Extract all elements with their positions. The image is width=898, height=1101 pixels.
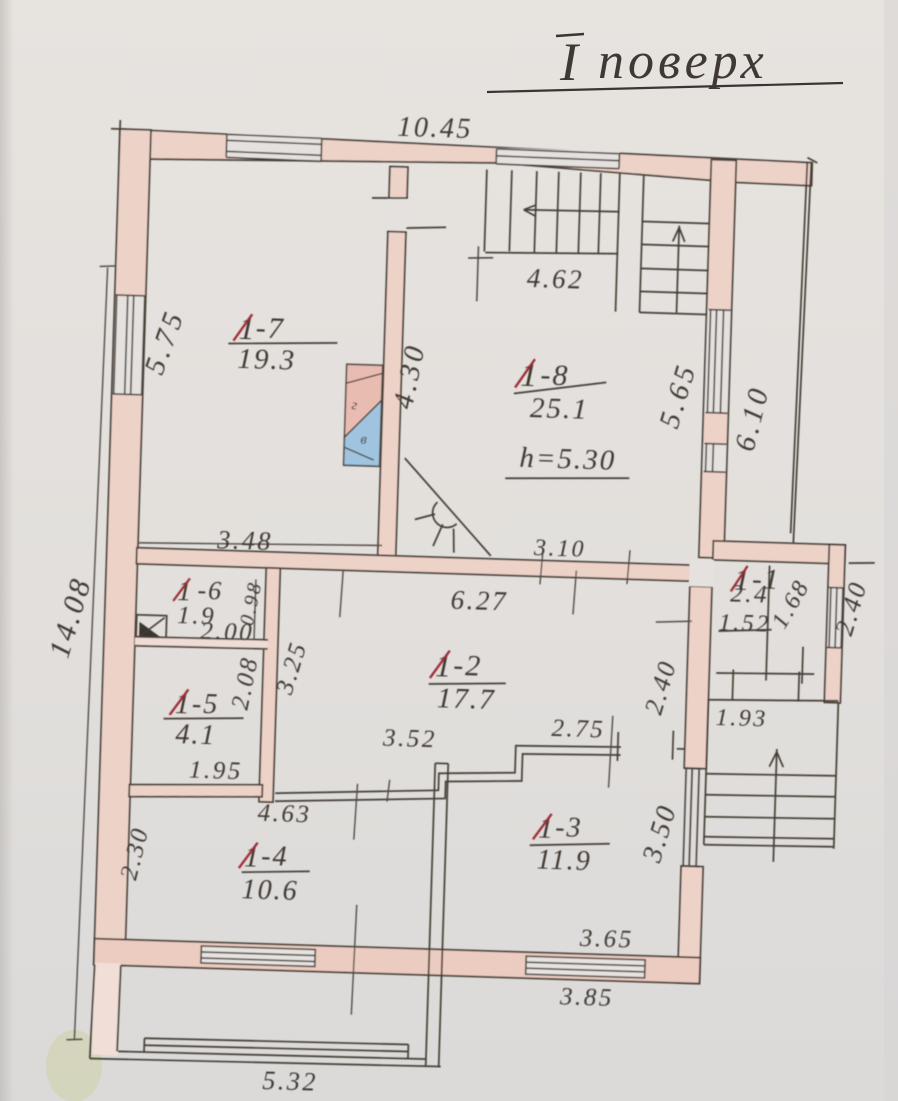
svg-text:г: г — [351, 397, 357, 413]
svg-text:17.7: 17.7 — [436, 682, 496, 716]
svg-text:поверх: поверх — [598, 33, 768, 90]
svg-text:3.85: 3.85 — [559, 983, 615, 1012]
svg-text:6.27: 6.27 — [450, 585, 508, 617]
svg-text:4.62: 4.62 — [526, 263, 584, 295]
svg-text:19.3: 19.3 — [237, 343, 297, 377]
svg-text:1: 1 — [734, 562, 753, 598]
svg-text:11.9: 11.9 — [536, 844, 592, 877]
svg-text:2.75: 2.75 — [551, 715, 606, 744]
svg-text:3.48: 3.48 — [216, 525, 273, 556]
svg-text:1.95: 1.95 — [189, 756, 244, 785]
svg-text:4.1: 4.1 — [175, 719, 217, 751]
svg-text:-2: -2 — [453, 649, 483, 683]
svg-text:-5: -5 — [191, 689, 219, 721]
svg-text:3.65: 3.65 — [579, 925, 635, 954]
svg-text:h=5.30: h=5.30 — [519, 442, 617, 477]
svg-text:-3: -3 — [555, 812, 583, 844]
svg-text:3.52: 3.52 — [382, 725, 438, 754]
svg-text:-1: -1 — [752, 563, 781, 596]
svg-text:10.45: 10.45 — [397, 112, 473, 145]
svg-text:в: в — [360, 432, 367, 448]
svg-text:1.93: 1.93 — [715, 705, 768, 733]
svg-text:3.10: 3.10 — [533, 535, 587, 563]
svg-text:-4: -4 — [261, 841, 289, 873]
svg-text:5.32: 5.32 — [262, 1066, 318, 1097]
svg-text:25.1: 25.1 — [530, 392, 590, 426]
svg-text:-6: -6 — [197, 576, 224, 606]
svg-text:І: І — [559, 32, 582, 92]
svg-text:1.52: 1.52 — [718, 610, 771, 638]
svg-text:-7: -7 — [255, 311, 285, 345]
svg-text:10.6: 10.6 — [241, 874, 299, 907]
svg-text:4.63: 4.63 — [257, 800, 312, 829]
